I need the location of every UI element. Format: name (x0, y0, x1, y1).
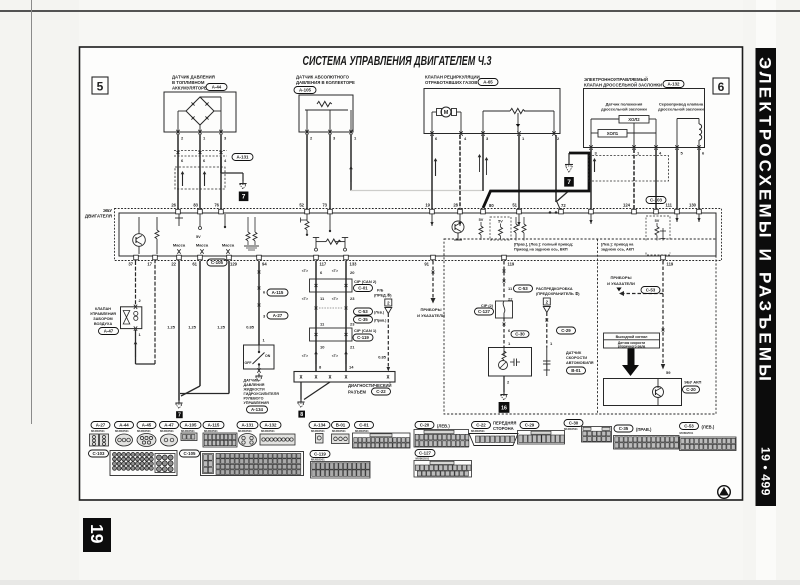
svg-text:111: 111 (665, 203, 672, 208)
svg-text:19: 19 (425, 203, 430, 208)
svg-text:<T>: <T> (302, 269, 308, 273)
svg-text:A-47: A-47 (104, 329, 114, 334)
svg-text:ХОЛ2: ХОЛ2 (628, 117, 640, 122)
svg-text:7: 7 (178, 413, 181, 419)
svg-text:23: 23 (350, 322, 355, 327)
svg-text:C-01: C-01 (359, 423, 369, 428)
svg-text:CIP (CAN 1): CIP (CAN 1) (354, 328, 377, 333)
svg-text:(Прав.): (Прав.) (374, 319, 387, 323)
svg-text:Масса: Масса (173, 243, 186, 248)
svg-text:14: 14 (349, 365, 354, 370)
svg-text:52: 52 (299, 203, 304, 208)
svg-text:ПРИБОРЫ: ПРИБОРЫ (611, 275, 632, 280)
svg-text:СИСТЕМА УПРАВЛЕНИЯ ДВИГАТЕЛЕМ: СИСТЕМА УПРАВЛЕНИЯ ДВИГАТЕЛЕМ Ч.3 (302, 54, 492, 68)
svg-text:C-29: C-29 (561, 328, 571, 333)
svg-text:(ПРЕД.⑤): (ПРЕД.⑤) (374, 293, 392, 298)
svg-text:72: 72 (561, 203, 566, 208)
svg-text:(Лев.): (Лев.) (374, 311, 385, 315)
svg-text:дроссельной заслонки: дроссельной заслонки (658, 107, 704, 112)
svg-text:ON: ON (265, 354, 271, 358)
svg-text:[Лев.]: привод на: [Лев.]: привод на (601, 243, 634, 247)
svg-text:Привод на заднюю ось, ВКП: Привод на заднюю ось, ВКП (514, 248, 568, 252)
svg-text:C-127: C-127 (419, 451, 432, 456)
svg-text:КЛАПАН РЕЦИРКУЛЯЦИИ: КЛАПАН РЕЦИРКУЛЯЦИИ (425, 75, 480, 80)
svg-text:C-119: C-119 (314, 452, 326, 457)
svg-text:АККУМУЛЯТОРЕ: АККУМУЛЯТОРЕ (172, 86, 207, 91)
svg-text:MU802501: MU802501 (416, 457, 430, 461)
svg-text:ДАТЧИК: ДАТЧИК (566, 351, 582, 355)
svg-text:C-103: C-103 (93, 451, 106, 456)
svg-text:C-53: C-53 (518, 286, 528, 291)
svg-text:(ПРАВ.): (ПРАВ.) (636, 427, 652, 432)
svg-text:7: 7 (242, 194, 246, 201)
svg-text:заднюю ось, АКП: заднюю ось, АКП (601, 248, 634, 252)
svg-text:A-27: A-27 (273, 313, 283, 318)
svg-text:ДАТЧИК: ДАТЧИК (244, 379, 260, 383)
svg-text:C-35: C-35 (619, 426, 629, 431)
svg-text:76: 76 (214, 203, 219, 208)
svg-text:0.85: 0.85 (246, 325, 255, 330)
svg-text:ЭЛЕКТРОННОУПРАВЛЯЕМЫЙ: ЭЛЕКТРОННОУПРАВЛЯЕМЫЙ (584, 77, 648, 82)
svg-text:119: 119 (508, 262, 515, 267)
svg-text:В ТОПЛИВНОМ: В ТОПЛИВНОМ (172, 80, 205, 85)
svg-text:5V: 5V (655, 219, 660, 223)
svg-text:124: 124 (623, 203, 631, 208)
svg-text:ЭБУ: ЭБУ (103, 208, 112, 213)
svg-text:ЖИДКОСТИ: ЖИДКОСТИ (243, 388, 266, 392)
svg-text:ХОЛ1: ХОЛ1 (607, 131, 619, 136)
svg-text:MU802501: MU802501 (181, 429, 195, 433)
svg-text:23: 23 (350, 296, 355, 301)
svg-text:ЭБУ АКП: ЭБУ АКП (684, 380, 702, 385)
svg-text:MU802501: MU802501 (680, 431, 694, 435)
svg-text:C-53: C-53 (646, 288, 656, 293)
svg-text:Масса: Масса (222, 243, 235, 248)
svg-text:10: 10 (320, 345, 325, 350)
svg-text:КЛАПАН: КЛАПАН (95, 307, 111, 311)
svg-text:94: 94 (262, 262, 267, 267)
svg-text:1.25: 1.25 (188, 325, 197, 330)
svg-text:<T>: <T> (302, 354, 308, 358)
svg-text:26: 26 (171, 203, 176, 208)
svg-text:MU802501: MU802501 (311, 458, 325, 462)
svg-text:ПЕРЕДНЯЯ: ПЕРЕДНЯЯ (493, 421, 516, 426)
svg-text:MU802501: MU802501 (471, 429, 485, 433)
svg-text:MU802501: MU802501 (564, 427, 578, 431)
svg-text:A-134: A-134 (314, 423, 327, 428)
svg-text:MU802501: MU802501 (332, 429, 346, 433)
svg-text:РУЛЕВОГО: РУЛЕВОГО (244, 397, 264, 401)
svg-text:A-131: A-131 (237, 155, 250, 160)
svg-text:MU802501: MU802501 (355, 429, 369, 433)
svg-text:A-115: A-115 (272, 290, 284, 295)
svg-text:83: 83 (193, 203, 198, 208)
svg-text:MU802501: MU802501 (115, 429, 129, 433)
svg-text:(ЛЕВ.): (ЛЕВ.) (437, 424, 450, 429)
svg-text:АВТОМОБИЛЯ: АВТОМОБИЛЯ (566, 361, 594, 365)
svg-text:MU802501: MU802501 (311, 429, 325, 433)
svg-text:130: 130 (689, 203, 697, 208)
svg-text:[Прав.], [Лев.]: полный привод: [Прав.], [Лев.]: полный привод; (514, 243, 573, 247)
svg-text:ОТРАБОТАВШИХ ГАЗОВ: ОТРАБОТАВШИХ ГАЗОВ (425, 80, 477, 85)
svg-text:MU802501: MU802501 (238, 429, 252, 433)
svg-text:ГИДРОУСИЛИТЕЛЯ: ГИДРОУСИЛИТЕЛЯ (244, 392, 280, 396)
svg-text:УПРАВЛЕНИЯ: УПРАВЛЕНИЯ (90, 312, 116, 316)
svg-text:C-105: C-105 (211, 260, 224, 265)
svg-text:C-22: C-22 (376, 389, 386, 394)
svg-text:C-20: C-20 (420, 423, 430, 428)
svg-text:80: 80 (489, 203, 494, 208)
svg-text:(ЛЕВ.): (ЛЕВ.) (702, 425, 715, 430)
svg-text:дроссельной заслонки: дроссельной заслонки (601, 107, 647, 112)
svg-text:<T>: <T> (332, 354, 338, 358)
svg-text:C-103: C-103 (650, 198, 663, 203)
svg-text:C-35: C-35 (358, 317, 368, 322)
svg-text:5V: 5V (479, 218, 484, 222)
svg-text:A-45: A-45 (142, 423, 152, 428)
svg-text:C-53: C-53 (358, 309, 368, 314)
svg-text:OFF: OFF (245, 361, 253, 365)
svg-text:C-53: C-53 (684, 424, 694, 429)
svg-text:22: 22 (171, 262, 176, 267)
svg-text:C-20: C-20 (686, 387, 696, 392)
svg-text:C-30: C-30 (515, 332, 525, 337)
svg-text:ЗАБОРОМ: ЗАБОРОМ (93, 317, 112, 321)
svg-text:5V: 5V (196, 235, 201, 239)
svg-text:C-29: C-29 (525, 423, 535, 428)
svg-text:C-22: C-22 (476, 423, 486, 428)
svg-text:<T>: <T> (332, 269, 338, 273)
svg-text:MU802501: MU802501 (261, 429, 275, 433)
svg-text:ДВИГАТЕЛЯ: ДВИГАТЕЛЯ (85, 214, 112, 219)
svg-text:<T>: <T> (302, 297, 308, 301)
svg-text:59: 59 (666, 370, 671, 375)
svg-text:И УКАЗАТЕЛИ: И УКАЗАТЕЛИ (607, 281, 635, 286)
svg-text:17: 17 (147, 262, 152, 267)
svg-text:61: 61 (192, 262, 197, 267)
svg-text:РАСПРЕДКОРОБКА: РАСПРЕДКОРОБКА (536, 287, 573, 291)
svg-text:MU802501: MU802501 (204, 429, 218, 433)
svg-text:УПРАВЛЕНИЯ: УПРАВЛЕНИЯ (244, 401, 270, 405)
svg-text:19: 19 (87, 524, 107, 544)
svg-text:СКОРОСТИ: СКОРОСТИ (566, 356, 587, 360)
svg-text:КЛАПАН ДРОССЕЛЬНОЙ ЗАСЛОНКИ: КЛАПАН ДРОССЕЛЬНОЙ ЗАСЛОНКИ (584, 83, 662, 88)
svg-text:C-30: C-30 (569, 421, 579, 426)
svg-text:6: 6 (718, 80, 725, 94)
svg-text:117: 117 (320, 262, 327, 267)
svg-text:CIP (CAN 2): CIP (CAN 2) (354, 279, 377, 284)
svg-text:СТОРОНА: СТОРОНА (493, 426, 514, 431)
svg-text:C-127: C-127 (478, 309, 491, 314)
svg-text:Масса: Масса (196, 243, 209, 248)
svg-text:B-01: B-01 (336, 423, 346, 428)
svg-text:A-105: A-105 (185, 423, 198, 428)
svg-text:A-65: A-65 (483, 80, 493, 85)
svg-text:19 • 499: 19 • 499 (759, 447, 773, 496)
svg-text:0.85: 0.85 (378, 355, 387, 360)
svg-text:ДАВЛЕНИЯ В КОЛЛЕКТОРЕ: ДАВЛЕНИЯ В КОЛЛЕКТОРЕ (296, 80, 355, 85)
svg-text:20: 20 (350, 270, 355, 275)
svg-text:5: 5 (97, 80, 104, 94)
svg-text:ДИАГНОСТИЧЕСКИЙ: ДИАГНОСТИЧЕСКИЙ (348, 383, 392, 388)
svg-text:129: 129 (230, 262, 238, 267)
svg-text:A-115: A-115 (208, 423, 220, 428)
svg-text:91: 91 (424, 262, 429, 267)
svg-text:MU802501: MU802501 (137, 429, 151, 433)
svg-text:A-132: A-132 (668, 82, 681, 87)
svg-text:A-105: A-105 (299, 88, 312, 93)
svg-text:1.25: 1.25 (217, 325, 226, 330)
svg-text:133: 133 (350, 262, 358, 267)
svg-text:A-44: A-44 (119, 423, 129, 428)
svg-text:5V: 5V (498, 220, 503, 224)
svg-text:1.25: 1.25 (167, 325, 176, 330)
svg-text:ДАТЧИК АБСОЛЮТНОГО: ДАТЧИК АБСОЛЮТНОГО (296, 75, 350, 80)
svg-text:вторичного вала: вторичного вала (618, 344, 646, 348)
svg-text:119: 119 (667, 262, 674, 267)
svg-text:И УКАЗАТЕЛИ: И УКАЗАТЕЛИ (417, 313, 445, 318)
svg-text:A-44: A-44 (212, 85, 222, 90)
svg-text:РАЗЪЕМ: РАЗЪЕМ (348, 390, 367, 395)
svg-text:MU802501: MU802501 (160, 429, 174, 433)
svg-text:7: 7 (567, 179, 571, 186)
svg-text:(ПРЕДОХРАНИТЕЛЬ ⑤): (ПРЕДОХРАНИТЕЛЬ ⑤) (536, 291, 580, 296)
svg-text:73: 73 (322, 203, 327, 208)
svg-text:37: 37 (128, 262, 133, 267)
svg-text:ДАТЧИК ДАВЛЕНИЯ: ДАТЧИК ДАВЛЕНИЯ (172, 75, 215, 80)
svg-text:A-134: A-134 (251, 407, 264, 412)
svg-text:M: M (444, 110, 449, 116)
svg-text:16: 16 (501, 405, 507, 411)
svg-text:A-131: A-131 (242, 423, 255, 428)
svg-text:A-27: A-27 (96, 423, 106, 428)
svg-text:C-119: C-119 (357, 335, 369, 340)
svg-text:Выходной сигнал: Выходной сигнал (616, 335, 648, 339)
svg-text:8: 8 (300, 412, 303, 418)
svg-text:C-105: C-105 (184, 451, 197, 456)
svg-text:<T>: <T> (332, 297, 338, 301)
svg-text:ЭЛЕКТРОСХЕМЫ И РАЗЪЕМЫ: ЭЛЕКТРОСХЕМЫ И РАЗЪЕМЫ (756, 57, 775, 384)
svg-text:ДАВЛЕНИЯ: ДАВЛЕНИЯ (244, 383, 265, 387)
svg-text:21: 21 (350, 345, 355, 350)
svg-text:ВОЗДУХА: ВОЗДУХА (94, 322, 113, 326)
svg-text:ПРИБОРЫ: ПРИБОРЫ (421, 307, 442, 312)
svg-text:Р/Б: Р/Б (377, 289, 384, 293)
svg-text:MU802501: MU802501 (91, 429, 105, 433)
svg-text:A-47: A-47 (164, 423, 174, 428)
svg-text:28: 28 (453, 203, 458, 208)
svg-text:A-132: A-132 (265, 423, 278, 428)
svg-text:B-01: B-01 (571, 368, 581, 373)
svg-text:CIP (2): CIP (2) (481, 304, 494, 308)
svg-text:C-01: C-01 (358, 286, 368, 291)
svg-text:51: 51 (512, 203, 517, 208)
